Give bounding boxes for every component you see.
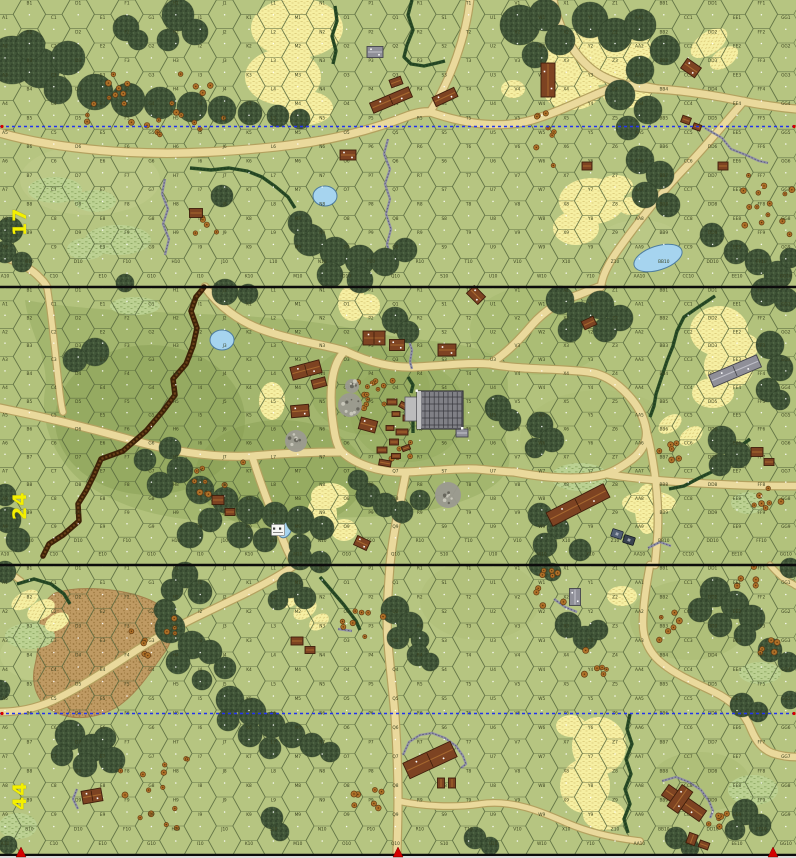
svg-text:K3: K3 — [246, 638, 252, 644]
svg-text:Y7: Y7 — [587, 754, 594, 760]
svg-text:GG7: GG7 — [781, 754, 791, 760]
svg-text:P4: P4 — [368, 87, 374, 93]
svg-text:W1: W1 — [538, 302, 545, 308]
svg-text:T3: T3 — [465, 343, 472, 349]
svg-text:E9: E9 — [100, 524, 106, 530]
svg-text:CC6: CC6 — [684, 441, 693, 447]
svg-text:G5: G5 — [148, 130, 154, 136]
svg-text:W7: W7 — [538, 468, 545, 474]
svg-text:D2: D2 — [75, 29, 81, 35]
svg-text:W9: W9 — [538, 245, 545, 251]
svg-text:K2: K2 — [246, 609, 252, 615]
svg-text:C6: C6 — [51, 725, 57, 731]
svg-text:R3: R3 — [417, 624, 423, 630]
wooden-building — [438, 778, 445, 788]
svg-text:U6: U6 — [490, 441, 496, 447]
svg-text:BB7: BB7 — [659, 454, 668, 460]
svg-text:CC7: CC7 — [684, 754, 693, 760]
svg-text:P2: P2 — [368, 29, 374, 35]
svg-text:L7: L7 — [271, 454, 276, 460]
svg-text:Z3: Z3 — [612, 343, 618, 349]
svg-text:Z3: Z3 — [612, 58, 618, 64]
svg-text:P4: P4 — [368, 371, 374, 377]
svg-text:Q5: Q5 — [392, 696, 398, 702]
svg-text:G4: G4 — [148, 667, 154, 673]
svg-text:U2: U2 — [490, 329, 496, 335]
svg-text:EE1: EE1 — [733, 15, 741, 21]
svg-text:O8: O8 — [344, 496, 350, 502]
svg-text:Z10: Z10 — [611, 259, 620, 265]
svg-text:F1: F1 — [124, 288, 129, 294]
svg-text:G9: G9 — [148, 812, 154, 818]
svg-text:FF1: FF1 — [758, 288, 766, 294]
svg-text:E5: E5 — [100, 696, 106, 702]
svg-text:Z8: Z8 — [612, 202, 618, 208]
svg-text:C2: C2 — [51, 329, 57, 335]
svg-text:Z7: Z7 — [612, 454, 618, 460]
svg-text:N3: N3 — [319, 58, 325, 64]
svg-text:CC1: CC1 — [684, 302, 693, 308]
svg-text:H8: H8 — [173, 769, 179, 775]
svg-text:U10: U10 — [489, 841, 498, 847]
svg-text:V7: V7 — [515, 173, 521, 179]
svg-text:AA10: AA10 — [634, 552, 646, 558]
svg-text:Y10: Y10 — [586, 273, 595, 279]
svg-text:S7: S7 — [441, 468, 447, 474]
svg-text:R5: R5 — [417, 115, 423, 121]
svg-text:Y1: Y1 — [587, 302, 594, 308]
svg-text:W5: W5 — [538, 696, 545, 702]
svg-text:H1: H1 — [173, 1, 179, 7]
svg-text:A5: A5 — [2, 696, 8, 702]
svg-text:EE7: EE7 — [733, 468, 741, 474]
svg-text:FF9: FF9 — [758, 798, 766, 804]
svg-text:G3: G3 — [148, 72, 154, 78]
svg-text:D8: D8 — [75, 202, 81, 208]
svg-text:W8: W8 — [538, 496, 545, 502]
svg-text:AA2: AA2 — [635, 44, 644, 50]
svg-text:J8: J8 — [222, 769, 227, 775]
svg-text:Q8: Q8 — [392, 496, 398, 502]
svg-text:J1: J1 — [222, 566, 227, 572]
svg-text:X4: X4 — [563, 371, 569, 377]
svg-text:Y9: Y9 — [587, 812, 594, 818]
svg-text:W6: W6 — [538, 441, 545, 447]
svg-text:F6: F6 — [124, 427, 129, 433]
svg-text:DD3: DD3 — [708, 624, 718, 630]
svg-text:FF6: FF6 — [758, 144, 766, 150]
svg-text:J1: J1 — [222, 288, 227, 294]
svg-text:A9: A9 — [2, 812, 8, 818]
svg-text:R10: R10 — [416, 259, 425, 265]
svg-text:FF8: FF8 — [758, 769, 766, 775]
svg-text:W1: W1 — [538, 580, 545, 586]
svg-text:CC5: CC5 — [684, 413, 693, 419]
svg-text:O7: O7 — [344, 187, 350, 193]
svg-text:T3: T3 — [465, 624, 472, 630]
svg-text:E2: E2 — [100, 329, 106, 335]
svg-text:M8: M8 — [295, 216, 302, 222]
svg-text:I2: I2 — [198, 329, 202, 335]
svg-text:GG6: GG6 — [781, 441, 791, 447]
svg-text:A5: A5 — [2, 413, 8, 419]
svg-text:S10: S10 — [440, 552, 448, 558]
svg-text:Y4: Y4 — [587, 101, 594, 107]
svg-text:L2: L2 — [271, 29, 276, 35]
svg-text:EE7: EE7 — [733, 187, 741, 193]
svg-text:O3: O3 — [344, 357, 350, 363]
svg-text:F7: F7 — [124, 454, 129, 460]
svg-text:K4: K4 — [246, 101, 252, 107]
svg-text:D10: D10 — [74, 538, 83, 544]
svg-text:U5: U5 — [490, 413, 496, 419]
svg-text:DD1: DD1 — [708, 288, 718, 294]
svg-text:P8: P8 — [368, 202, 374, 208]
svg-text:BB2: BB2 — [659, 315, 668, 321]
svg-text:Q1: Q1 — [392, 580, 398, 586]
svg-text:H9: H9 — [173, 510, 179, 516]
wooden-building — [392, 454, 401, 459]
stone-building — [367, 47, 383, 58]
svg-text:FF9: FF9 — [758, 230, 766, 236]
svg-text:R3: R3 — [417, 343, 423, 349]
svg-text:M9: M9 — [295, 524, 302, 530]
svg-text:Z6: Z6 — [612, 144, 618, 150]
svg-text:Y7: Y7 — [587, 468, 594, 474]
svg-text:DD9: DD9 — [708, 230, 718, 236]
svg-text:Z7: Z7 — [612, 173, 618, 179]
svg-text:L5: L5 — [271, 115, 276, 121]
white-counter[interactable] — [272, 525, 285, 536]
svg-text:K7: K7 — [246, 468, 252, 474]
svg-text:L10: L10 — [269, 538, 277, 544]
svg-text:N2: N2 — [319, 315, 325, 321]
svg-text:S4: S4 — [441, 385, 447, 391]
svg-text:A10: A10 — [1, 273, 10, 279]
svg-text:EE2: EE2 — [733, 609, 741, 615]
svg-text:M10: M10 — [293, 273, 302, 279]
svg-text:T9: T9 — [465, 798, 472, 804]
svg-text:N5: N5 — [319, 399, 325, 405]
svg-text:I4: I4 — [198, 101, 202, 107]
svg-text:U8: U8 — [490, 216, 496, 222]
svg-text:DD7: DD7 — [708, 173, 718, 179]
svg-text:L4: L4 — [271, 87, 276, 93]
svg-text:R7: R7 — [417, 740, 423, 746]
svg-text:H7: H7 — [173, 740, 179, 746]
svg-text:M7: M7 — [295, 187, 302, 193]
svg-text:U1: U1 — [490, 15, 496, 21]
svg-text:H5: H5 — [173, 682, 179, 688]
svg-text:B1: B1 — [27, 288, 33, 294]
svg-text:C5: C5 — [51, 130, 57, 136]
svg-text:FF5: FF5 — [758, 682, 766, 688]
svg-text:EE4: EE4 — [733, 101, 741, 107]
svg-text:U8: U8 — [490, 783, 496, 789]
svg-text:AA1: AA1 — [635, 302, 644, 308]
svg-text:K6: K6 — [246, 441, 252, 447]
svg-text:Q5: Q5 — [392, 130, 398, 136]
svg-text:K9: K9 — [246, 245, 252, 251]
svg-text:BB6: BB6 — [659, 144, 668, 150]
svg-text:CC5: CC5 — [684, 696, 693, 702]
wooden-building — [390, 340, 405, 351]
svg-text:I10: I10 — [197, 841, 204, 847]
svg-text:M9: M9 — [295, 812, 302, 818]
svg-text:V1: V1 — [515, 1, 521, 7]
svg-text:S10: S10 — [440, 841, 448, 847]
svg-text:DD5: DD5 — [708, 682, 718, 688]
svg-text:V10: V10 — [513, 538, 522, 544]
svg-text:F3: F3 — [124, 58, 129, 64]
svg-text:O10: O10 — [342, 841, 351, 847]
svg-text:V9: V9 — [515, 798, 521, 804]
svg-text:EE9: EE9 — [733, 524, 741, 530]
svg-text:X4: X4 — [563, 653, 569, 659]
svg-text:EE4: EE4 — [733, 667, 741, 673]
svg-text:V8: V8 — [515, 769, 521, 775]
svg-text:AA3: AA3 — [635, 638, 644, 644]
svg-text:X7: X7 — [563, 454, 569, 460]
svg-text:AA9: AA9 — [635, 245, 644, 251]
svg-text:G5: G5 — [148, 413, 154, 419]
svg-text:DD5: DD5 — [708, 115, 718, 121]
svg-text:L3: L3 — [271, 343, 276, 349]
svg-text:GG9: GG9 — [781, 245, 791, 251]
svg-text:W2: W2 — [538, 329, 545, 335]
svg-text:J3: J3 — [222, 624, 227, 630]
svg-text:L8: L8 — [271, 769, 276, 775]
svg-text:J10: J10 — [220, 259, 228, 265]
svg-text:E6: E6 — [100, 441, 106, 447]
svg-text:D10: D10 — [74, 259, 83, 265]
svg-text:Y7: Y7 — [587, 187, 594, 193]
svg-text:E9: E9 — [100, 245, 106, 251]
svg-text:AA4: AA4 — [635, 385, 644, 391]
svg-text:W5: W5 — [538, 413, 545, 419]
svg-text:I7: I7 — [198, 754, 202, 760]
svg-text:B8: B8 — [27, 482, 33, 488]
svg-text:T4: T4 — [465, 653, 472, 659]
svg-text:GG5: GG5 — [781, 696, 791, 702]
svg-text:FF8: FF8 — [758, 202, 766, 208]
svg-text:Z1: Z1 — [612, 1, 618, 7]
wooden-building — [212, 496, 224, 505]
svg-text:J3: J3 — [222, 58, 227, 64]
svg-text:K9: K9 — [246, 524, 252, 530]
svg-text:P10: P10 — [367, 259, 375, 265]
svg-text:D7: D7 — [75, 173, 81, 179]
svg-text:W8: W8 — [538, 216, 545, 222]
svg-text:H6: H6 — [173, 427, 179, 433]
svg-text:G4: G4 — [148, 101, 154, 107]
svg-text:U9: U9 — [490, 812, 496, 818]
svg-text:C3: C3 — [51, 638, 57, 644]
svg-text:H3: H3 — [173, 58, 179, 64]
svg-text:BB5: BB5 — [659, 682, 668, 688]
svg-text:D9: D9 — [75, 510, 81, 516]
svg-text:BB9: BB9 — [659, 230, 668, 236]
svg-text:Z2: Z2 — [612, 29, 618, 35]
svg-text:V4: V4 — [515, 653, 521, 659]
svg-text:DD3: DD3 — [708, 58, 718, 64]
svg-text:AA6: AA6 — [635, 158, 644, 164]
svg-text:A10: A10 — [1, 552, 10, 558]
svg-text:G8: G8 — [148, 783, 154, 789]
svg-text:GG1: GG1 — [781, 15, 791, 21]
svg-text:GG7: GG7 — [781, 187, 791, 193]
svg-text:X7: X7 — [563, 173, 569, 179]
svg-text:N1: N1 — [319, 566, 325, 572]
svg-text:W3: W3 — [538, 357, 545, 363]
hex-map[interactable]: A1A2A3A4A5A6A7A8A9A10B1B2B3B4B5B6B7B8B9B… — [0, 0, 796, 858]
svg-text:O4: O4 — [344, 667, 350, 673]
svg-text:J2: J2 — [222, 315, 227, 321]
svg-text:O1: O1 — [344, 15, 350, 21]
wooden-building — [541, 63, 555, 97]
svg-text:W2: W2 — [538, 609, 545, 615]
svg-text:X1: X1 — [563, 566, 569, 572]
svg-text:S6: S6 — [441, 158, 447, 164]
svg-text:Q6: Q6 — [392, 725, 398, 731]
svg-text:E8: E8 — [100, 216, 106, 222]
svg-text:H2: H2 — [173, 595, 179, 601]
svg-text:Y3: Y3 — [587, 638, 594, 644]
svg-text:GG10: GG10 — [780, 273, 792, 279]
svg-text:D8: D8 — [75, 482, 81, 488]
svg-text:B3: B3 — [27, 58, 33, 64]
svg-text:I4: I4 — [198, 385, 202, 391]
svg-text:E10: E10 — [99, 273, 107, 279]
svg-text:A9: A9 — [2, 245, 8, 251]
svg-text:I7: I7 — [198, 187, 202, 193]
svg-text:S3: S3 — [441, 72, 447, 78]
svg-text:G7: G7 — [148, 187, 154, 193]
svg-text:S1: S1 — [441, 15, 447, 21]
svg-text:AA6: AA6 — [635, 725, 644, 731]
svg-text:C1: C1 — [51, 580, 57, 586]
svg-text:P7: P7 — [368, 173, 374, 179]
svg-text:Z4: Z4 — [612, 87, 618, 93]
svg-text:N2: N2 — [319, 29, 325, 35]
svg-text:Y6: Y6 — [587, 725, 594, 731]
svg-text:M10: M10 — [293, 841, 302, 847]
svg-text:O8: O8 — [344, 783, 350, 789]
svg-text:D7: D7 — [75, 740, 81, 746]
svg-text:M3: M3 — [295, 72, 302, 78]
svg-text:G8: G8 — [148, 216, 154, 222]
svg-text:A1: A1 — [2, 580, 8, 586]
svg-text:R9: R9 — [417, 230, 423, 236]
svg-text:W10: W10 — [537, 273, 547, 279]
svg-text:AA3: AA3 — [635, 72, 644, 78]
svg-text:N6: N6 — [319, 427, 325, 433]
svg-text:B4: B4 — [27, 653, 33, 659]
svg-text:CC10: CC10 — [682, 273, 694, 279]
svg-text:EE5: EE5 — [733, 130, 741, 136]
svg-text:H10: H10 — [171, 827, 180, 833]
svg-text:J1: J1 — [222, 1, 227, 7]
svg-text:DD8: DD8 — [708, 769, 718, 775]
svg-text:P8: P8 — [368, 769, 374, 775]
svg-text:C6: C6 — [51, 441, 57, 447]
svg-text:Z10: Z10 — [611, 827, 620, 833]
svg-text:G9: G9 — [148, 245, 154, 251]
svg-text:I4: I4 — [198, 667, 202, 673]
svg-text:E10: E10 — [99, 552, 107, 558]
svg-text:CC7: CC7 — [684, 187, 693, 193]
svg-text:A7: A7 — [2, 468, 8, 474]
svg-text:O7: O7 — [344, 754, 350, 760]
svg-text:K9: K9 — [246, 812, 252, 818]
svg-text:N2: N2 — [319, 595, 325, 601]
svg-text:R1: R1 — [417, 1, 423, 7]
svg-text:Q1: Q1 — [392, 15, 398, 21]
svg-text:U3: U3 — [490, 72, 496, 78]
svg-text:E6: E6 — [100, 725, 106, 731]
svg-text:D5: D5 — [75, 399, 81, 405]
svg-text:N1: N1 — [319, 288, 325, 294]
svg-text:B10: B10 — [25, 538, 34, 544]
svg-text:Y3: Y3 — [587, 72, 594, 78]
svg-text:L3: L3 — [271, 624, 276, 630]
svg-text:Q3: Q3 — [392, 357, 398, 363]
svg-text:B1: B1 — [27, 566, 33, 572]
svg-text:C5: C5 — [51, 696, 57, 702]
svg-text:M8: M8 — [295, 496, 302, 502]
svg-text:CC4: CC4 — [684, 667, 693, 673]
svg-text:K10: K10 — [245, 841, 254, 847]
svg-text:CC2: CC2 — [684, 44, 693, 50]
svg-text:F8: F8 — [124, 769, 129, 775]
svg-text:O1: O1 — [344, 580, 350, 586]
svg-text:A4: A4 — [2, 101, 8, 107]
svg-text:U7: U7 — [490, 468, 496, 474]
svg-text:BB3: BB3 — [659, 343, 668, 349]
svg-text:E4: E4 — [100, 385, 106, 391]
svg-text:A7: A7 — [2, 187, 8, 193]
svg-text:CC10: CC10 — [682, 552, 694, 558]
svg-text:N10: N10 — [318, 259, 327, 265]
svg-text:N7: N7 — [319, 173, 325, 179]
svg-text:I2: I2 — [198, 609, 202, 615]
svg-text:X6: X6 — [563, 144, 569, 150]
svg-text:BB10: BB10 — [658, 538, 670, 544]
svg-text:I8: I8 — [198, 783, 202, 789]
svg-text:C4: C4 — [51, 667, 57, 673]
svg-text:R9: R9 — [417, 798, 423, 804]
svg-text:E9: E9 — [100, 812, 106, 818]
svg-text:M2: M2 — [295, 609, 302, 615]
svg-text:I10: I10 — [197, 552, 204, 558]
svg-text:Q2: Q2 — [392, 329, 398, 335]
svg-text:FF10: FF10 — [756, 259, 767, 265]
svg-text:X8: X8 — [563, 482, 569, 488]
svg-text:EE3: EE3 — [733, 72, 741, 78]
svg-text:L8: L8 — [271, 482, 276, 488]
svg-text:E1: E1 — [100, 580, 106, 586]
svg-text:L1: L1 — [271, 288, 276, 294]
svg-text:O5: O5 — [344, 696, 350, 702]
svg-text:E3: E3 — [100, 638, 106, 644]
svg-text:P9: P9 — [368, 510, 374, 516]
svg-text:CC8: CC8 — [684, 496, 693, 502]
svg-text:L7: L7 — [271, 740, 276, 746]
wooden-building — [190, 209, 203, 218]
svg-text:A8: A8 — [2, 496, 8, 502]
svg-text:A3: A3 — [2, 357, 8, 363]
svg-text:EE4: EE4 — [733, 385, 741, 391]
